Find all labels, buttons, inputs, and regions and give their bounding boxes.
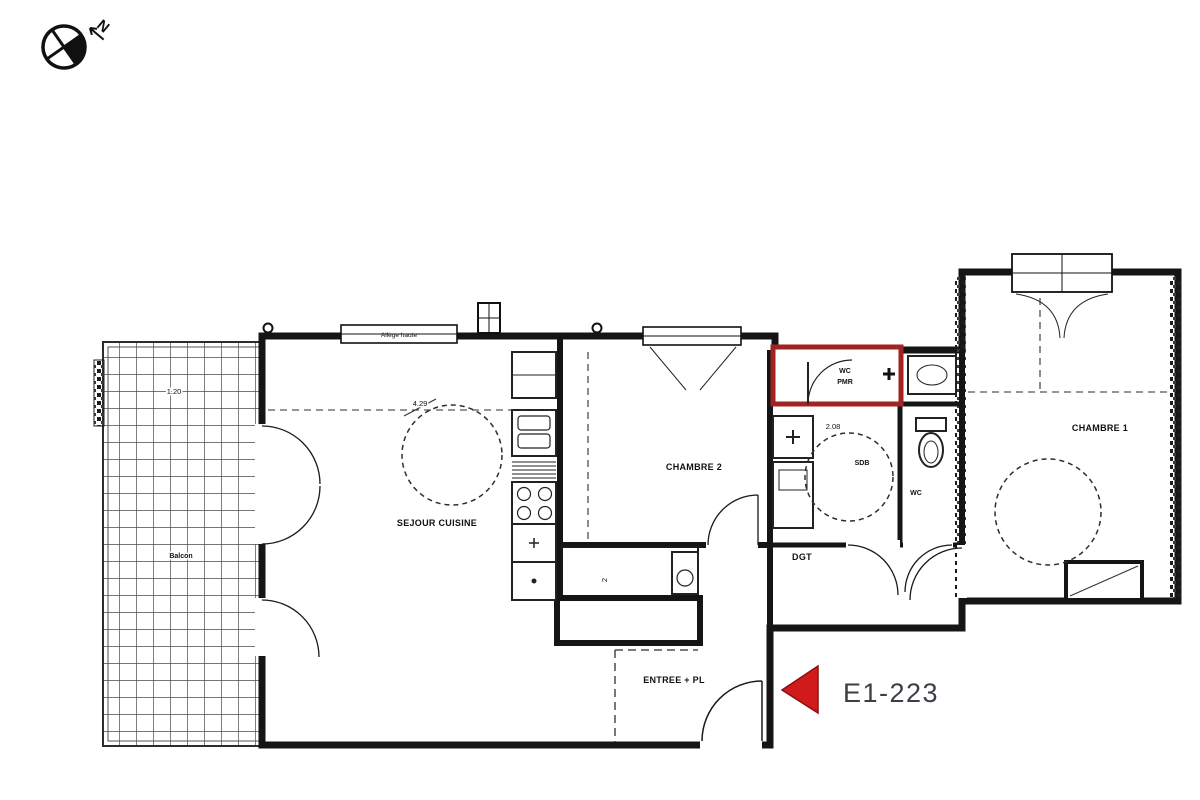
wc-pmr-red-walls (773, 347, 901, 404)
dim-sdb: 2.08 (826, 422, 841, 431)
hob-burner-4 (539, 507, 552, 520)
label-sdb: SDB (855, 460, 870, 467)
wc-top-basin-bowl (917, 365, 947, 385)
label-chambre-1: CHAMBRE 1 (1072, 423, 1128, 433)
hob-burner-3 (518, 507, 531, 520)
chambre2-door-opening (706, 540, 758, 550)
label-entree: ENTREE + PL (643, 675, 705, 685)
balcony-hatched-area (103, 342, 265, 746)
sink-bowl-2 (518, 434, 550, 448)
floor-plan-page: N Balcon 1.20 (0, 0, 1200, 800)
compass-rose: N (35, 14, 115, 76)
counter-dot (532, 579, 536, 583)
washer-box (672, 552, 698, 594)
window-note-label: Allège haute (381, 332, 418, 339)
unit-label: E1-223 (843, 678, 939, 708)
label-sejour-cuisine: SEJOUR CUISINE (397, 518, 477, 528)
insulation-band-right (1170, 277, 1181, 598)
wall-marker-circle-2 (593, 324, 602, 333)
window-sejour: Allège haute (341, 325, 457, 343)
closet-lower (557, 598, 700, 643)
wc-pmr-box: WC PMR (773, 347, 901, 404)
sdb-column-detail (779, 470, 807, 490)
north-arrow: N (87, 14, 115, 42)
unit-marker-arrow (782, 666, 818, 713)
dim-sejour: 4.29 (413, 399, 428, 408)
balcony-pillar (94, 360, 104, 426)
balcony-door-opening (255, 424, 268, 544)
wc-pmr-label-line2: PMR (837, 379, 853, 386)
wall-marker-circle-1 (264, 324, 273, 333)
wc-tank (916, 418, 946, 431)
sink-bowl-1 (518, 416, 550, 430)
hob-burner-2 (539, 488, 552, 501)
floor-plan-drawing: N Balcon 1.20 (0, 0, 1200, 800)
entry-door-opening (700, 738, 762, 751)
label-wc: WC (910, 490, 922, 497)
label-chambre-2: CHAMBRE 2 (666, 462, 722, 472)
balcony: Balcon 1.20 (94, 342, 265, 746)
wc-pmr-label-line1: WC (839, 368, 851, 375)
chambre1-door-opening (957, 545, 967, 598)
balcony-dimension: 1.20 (167, 387, 182, 396)
balcony-door2-opening (255, 598, 268, 656)
hob-burner-1 (518, 488, 531, 501)
unit-marker: E1-223 (782, 666, 939, 713)
balcony-label: Balcon (169, 553, 192, 560)
label-dgt: DGT (792, 552, 812, 562)
dim-placard: 2 (600, 578, 609, 582)
wc-bowl-inner (924, 441, 938, 463)
